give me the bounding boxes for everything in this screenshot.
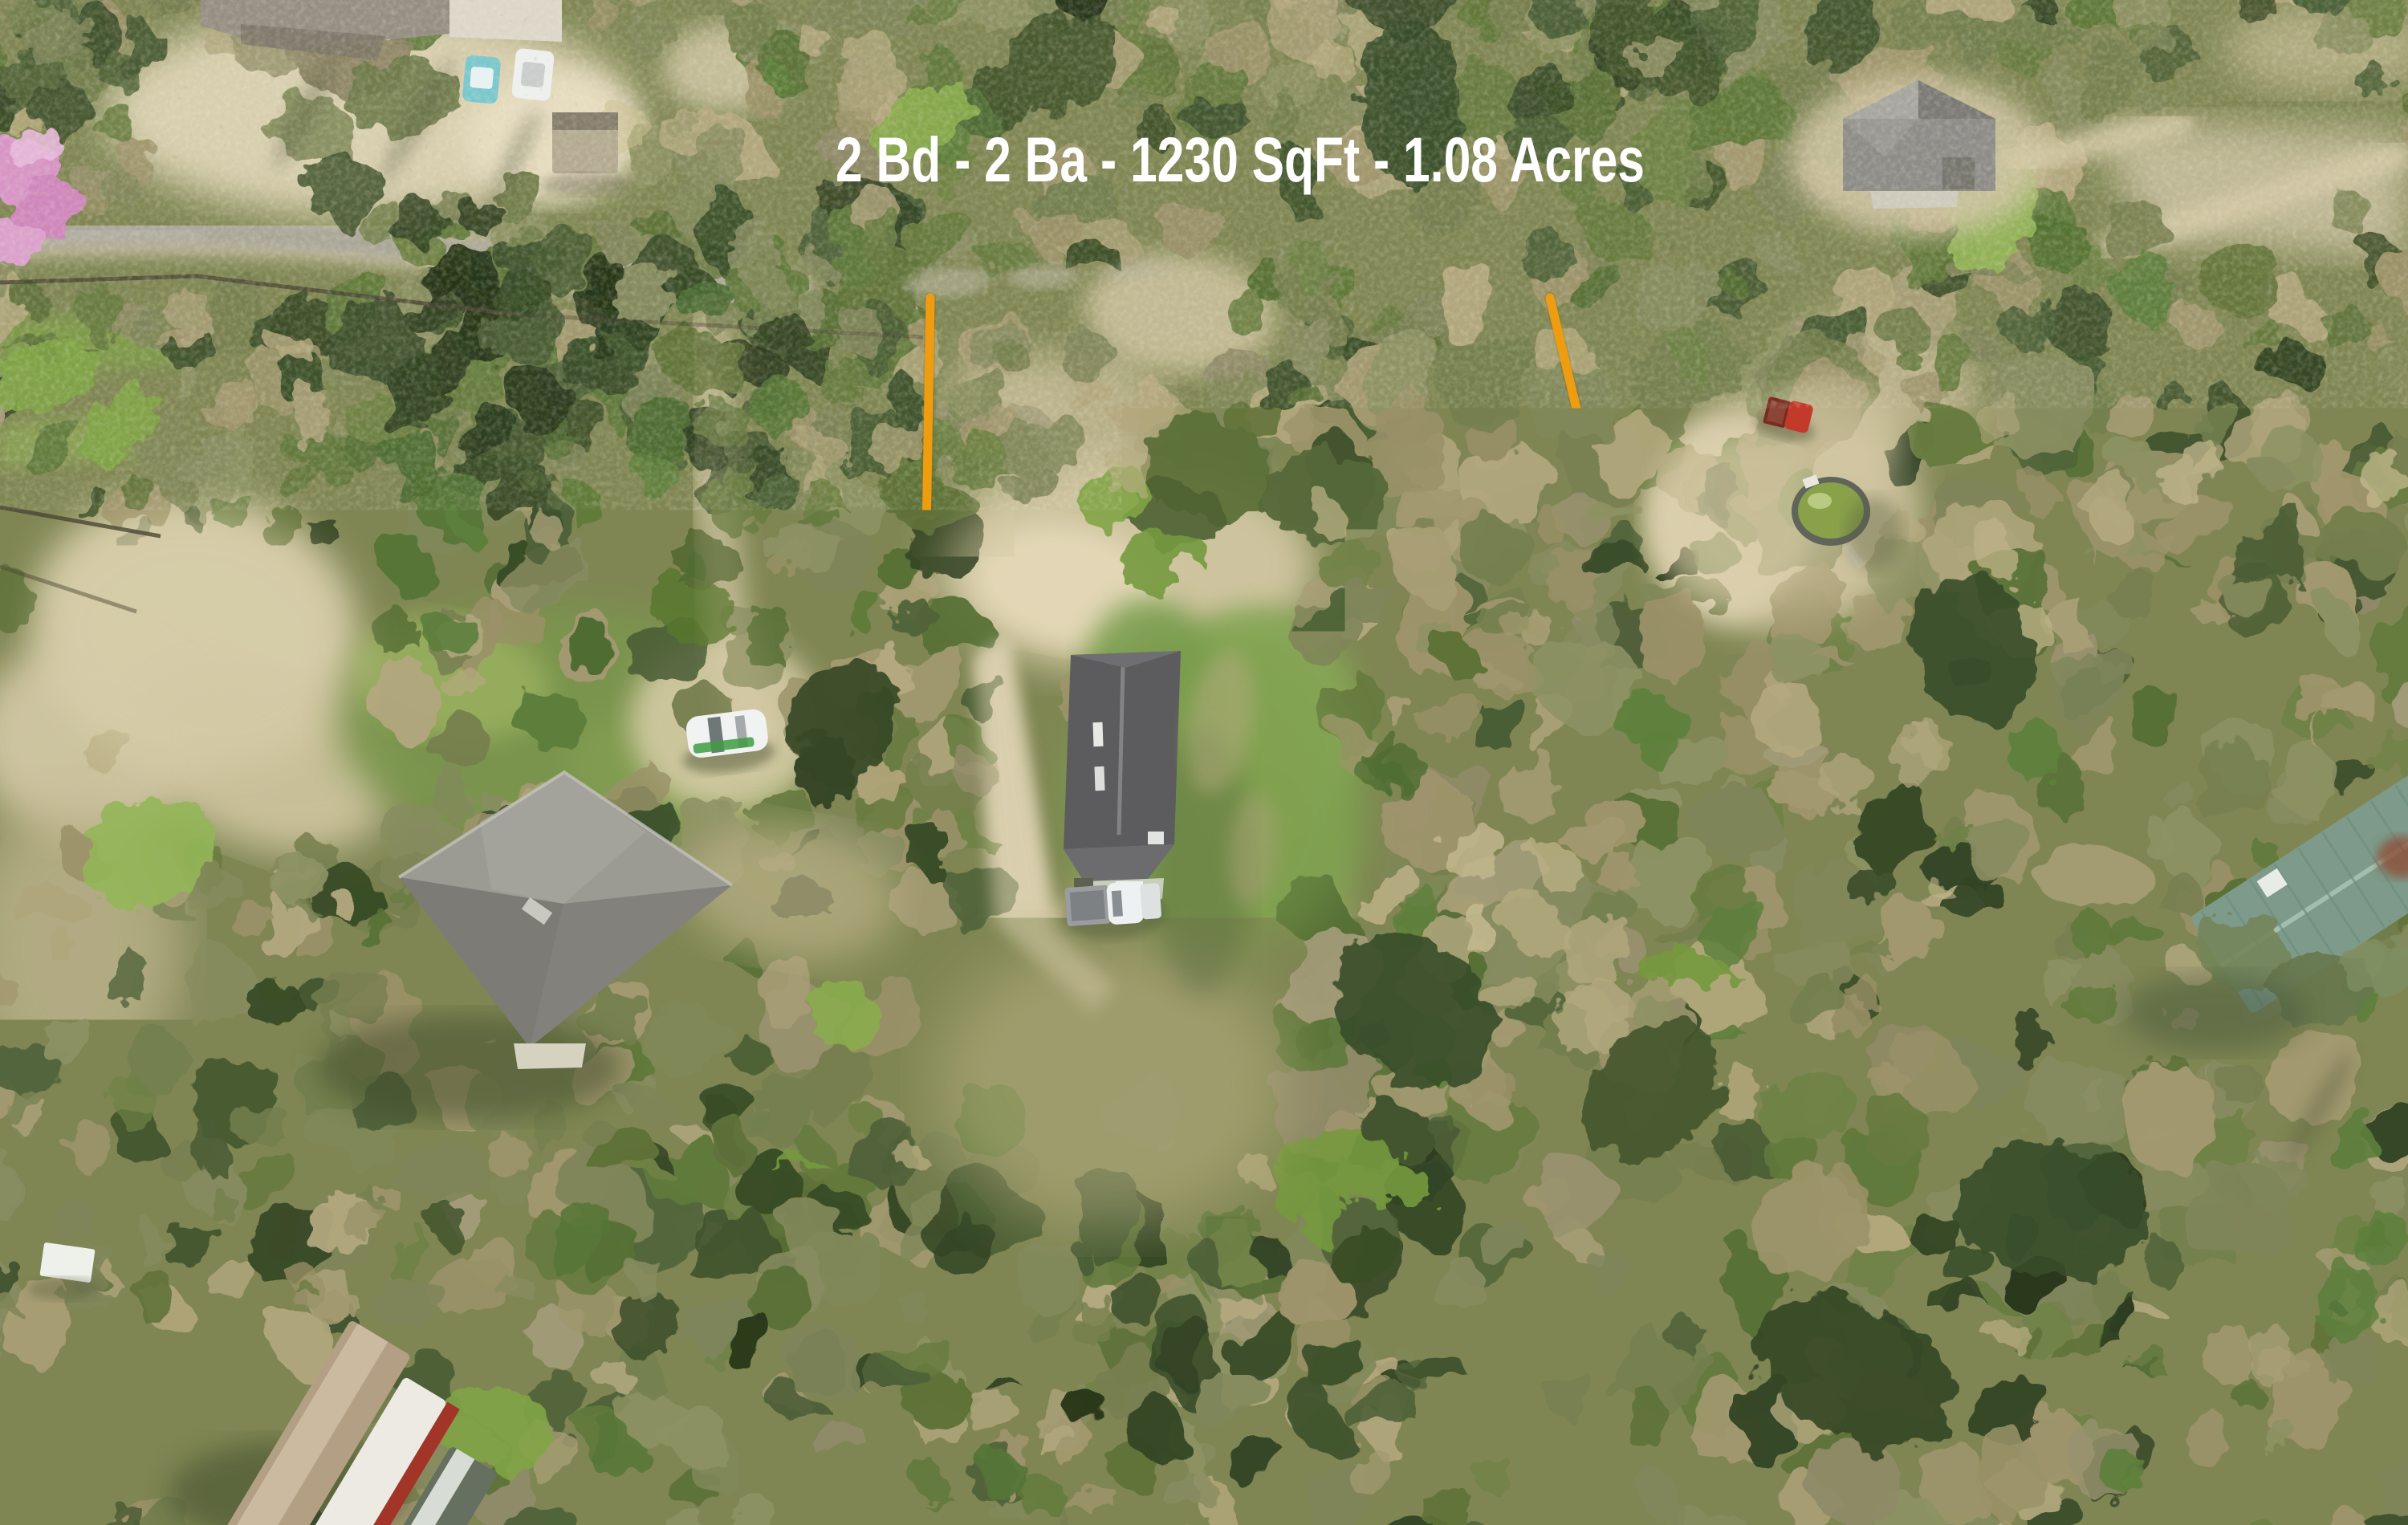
svg-text:©2025 NEFMLS, Inc: ©2025 NEFMLS, Inc <box>6 1425 432 1500</box>
svg-text:2 Bd - 2 Ba - 1230 SqFt - 1.08: 2 Bd - 2 Ba - 1230 SqFt - 1.08 Acres <box>836 124 1645 195</box>
